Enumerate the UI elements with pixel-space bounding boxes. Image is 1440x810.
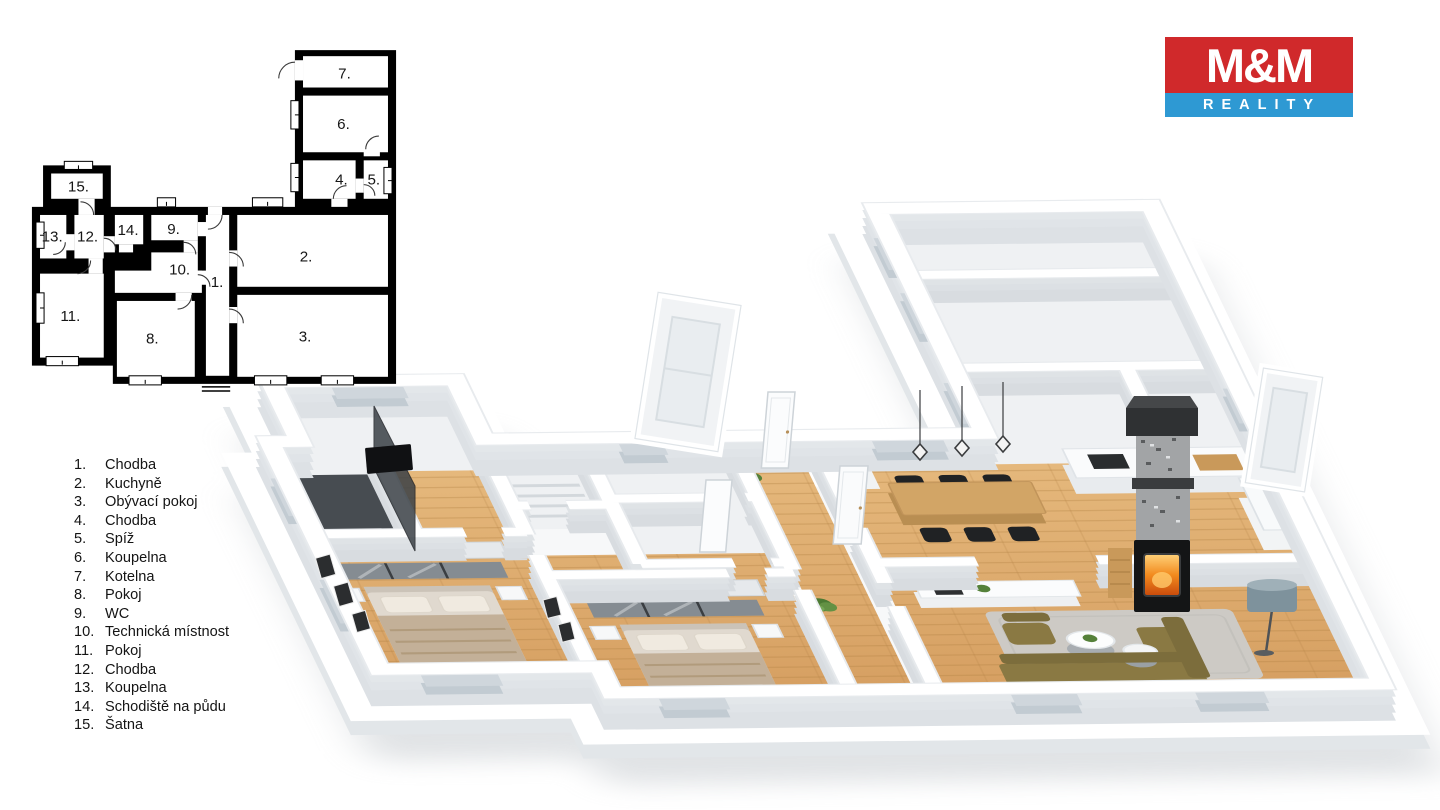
- legend-item-number: 4.: [74, 512, 105, 531]
- legend-item-label: Technická místnost: [105, 623, 304, 642]
- legend-item: 3.Obývací pokoj: [74, 493, 304, 512]
- dormer-window: [1245, 368, 1322, 492]
- room-number-label: 7.: [338, 65, 351, 82]
- legend-item-label: Spíž: [105, 530, 304, 549]
- legend-item: 12.Chodba: [74, 661, 304, 680]
- brand-logo-mm: M&M: [1165, 37, 1353, 93]
- legend-item: 8.Pokoj: [74, 586, 304, 605]
- legend-item-label: Chodba: [105, 661, 304, 680]
- room-number-label: 1.: [211, 274, 224, 291]
- legend-item-label: Chodba: [105, 456, 304, 475]
- porch-steps: [202, 387, 230, 391]
- room-number-label: 2.: [300, 248, 313, 265]
- legend-item-number: 7.: [74, 568, 105, 587]
- pillow: [693, 633, 747, 649]
- pillow: [437, 596, 491, 612]
- legend-item-number: 12.: [74, 661, 105, 680]
- legend-item-number: 10.: [74, 623, 105, 642]
- legend-item-label: Pokoj: [105, 586, 304, 605]
- wood-niche: [1108, 548, 1132, 598]
- legend-item-label: Schodiště na půdu: [105, 698, 304, 717]
- room-number-label: 3.: [299, 328, 312, 345]
- legend-item-number: 14.: [74, 698, 105, 717]
- room-number-label: 10.: [169, 262, 190, 279]
- legend-item: 6.Koupelna: [74, 549, 304, 568]
- plan-rooms: [40, 56, 388, 377]
- legend-item: 11.Pokoj: [74, 642, 304, 661]
- chimney-cap: [1126, 408, 1198, 436]
- legend-item-label: Šatna: [105, 716, 304, 735]
- legend-item-number: 3.: [74, 493, 105, 512]
- dormer-window: [635, 292, 741, 451]
- legend-item: 7.Kotelna: [74, 568, 304, 587]
- legend-item-label: Kotelna: [105, 568, 304, 587]
- nightstand: [496, 586, 527, 599]
- brand-logo-reality: REALITY: [1165, 93, 1353, 117]
- room-number-label: 4.: [335, 172, 348, 189]
- legend-item-label: WC: [105, 605, 304, 624]
- legend-item-label: Kuchyně: [105, 475, 304, 494]
- page: 7. 6. 4. 5. 15. 13. 12. 14. 9. 10. 1. 2.…: [0, 0, 1440, 810]
- legend-item: 15.Šatna: [74, 716, 304, 735]
- legend-item: 9.WC: [74, 605, 304, 624]
- room-number-label: 5.: [367, 172, 380, 189]
- legend-item-number: 13.: [74, 679, 105, 698]
- legend-item: 1.Chodba: [74, 456, 304, 475]
- legend-item: 14.Schodiště na půdu: [74, 698, 304, 717]
- armchair-back: [1000, 613, 1051, 622]
- floorplan-2d: 7. 6. 4. 5. 15. 13. 12. 14. 9. 10. 1. 2.…: [28, 42, 400, 394]
- legend-item: 13.Koupelna: [74, 679, 304, 698]
- room-number-label: 6.: [337, 116, 350, 133]
- room-number-label: 8.: [146, 330, 159, 347]
- room-number-label: 9.: [167, 221, 180, 238]
- legend-item-number: 2.: [74, 475, 105, 494]
- room-number-label: 11.: [60, 308, 80, 325]
- legend-item-label: Koupelna: [105, 679, 304, 698]
- nightstand: [752, 624, 783, 637]
- pillow: [379, 596, 433, 612]
- legend-item-label: Chodba: [105, 512, 304, 531]
- legend-item-number: 5.: [74, 530, 105, 549]
- room-number-label: 12.: [77, 228, 98, 245]
- legend-item-number: 9.: [74, 605, 105, 624]
- wood-shelf: [1192, 454, 1244, 470]
- legend-item-label: Obývací pokoj: [105, 493, 304, 512]
- kitchen-sink: [1087, 454, 1130, 469]
- pillow: [635, 634, 689, 650]
- legend-item-number: 1.: [74, 456, 105, 475]
- room-number-label: 13.: [42, 228, 63, 245]
- legend-item: 2.Kuchyně: [74, 475, 304, 494]
- chimney-cap-top: [1126, 396, 1198, 408]
- room-number-label: 15.: [68, 179, 89, 196]
- tv-panel: [365, 444, 413, 474]
- legend-item-number: 15.: [74, 716, 105, 735]
- legend: 1.Chodba 2.Kuchyně 3.Obývací pokoj 4.Cho…: [74, 456, 304, 735]
- legend-item: 4.Chodba: [74, 512, 304, 531]
- legend-item: 10.Technická místnost: [74, 623, 304, 642]
- legend-item-label: Pokoj: [105, 642, 304, 661]
- legend-item-label: Koupelna: [105, 549, 304, 568]
- flame: [1152, 572, 1172, 588]
- dining-table-top: [888, 482, 1046, 516]
- brand-logo: M&M REALITY: [1165, 37, 1353, 117]
- legend-item-number: 8.: [74, 586, 105, 605]
- legend-item: 5.Spíž: [74, 530, 304, 549]
- nightstand: [590, 626, 621, 639]
- room-number-label: 14.: [117, 222, 138, 239]
- legend-item-number: 11.: [74, 642, 105, 661]
- legend-item-number: 6.: [74, 549, 105, 568]
